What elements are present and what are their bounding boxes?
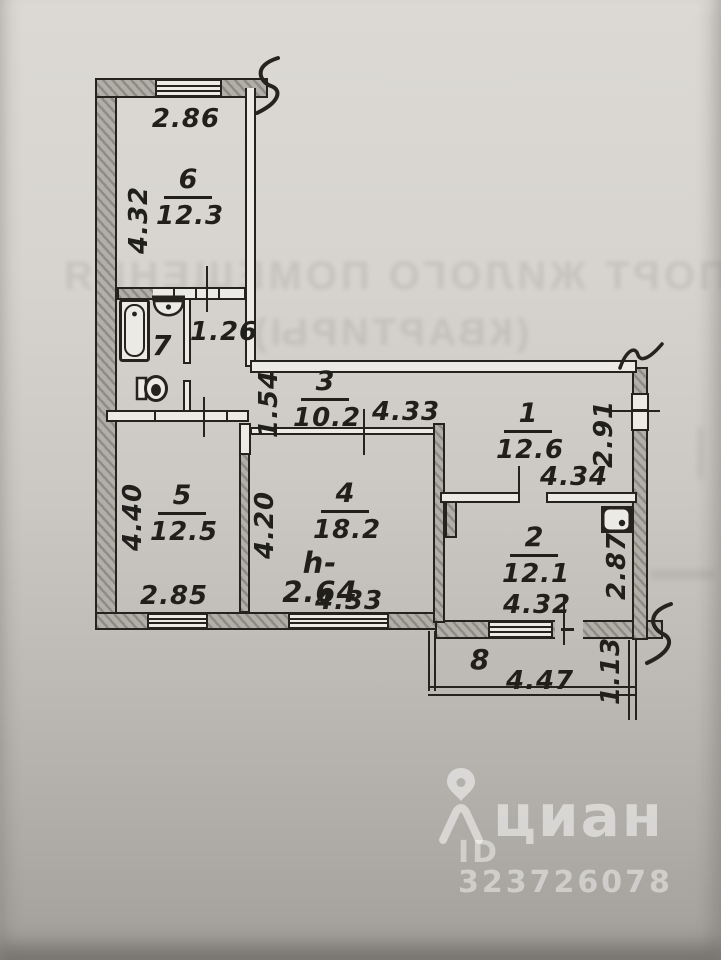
room-8-number: 8	[470, 646, 489, 674]
room-5-number: 5	[150, 482, 214, 509]
toilet-icon	[135, 373, 169, 403]
room-2-area: 12.1	[502, 561, 566, 587]
room-2-number: 2	[502, 524, 566, 551]
bathtub-icon	[119, 299, 150, 362]
room-6-number: 6	[156, 166, 220, 193]
dim-room4-width: 4.33	[315, 588, 379, 614]
dim-room6-height: 4.32	[124, 165, 154, 275]
fraction-bar	[158, 512, 206, 515]
room-4-number: 4	[313, 480, 377, 507]
dim-room3-height: 1.54	[254, 374, 284, 434]
fraction-bar	[504, 430, 552, 433]
wall-break-icon	[620, 344, 662, 368]
fraction-bar	[301, 398, 349, 401]
fraction-bar	[510, 554, 558, 557]
cian-brand-text: циан	[493, 790, 664, 842]
room-7-number: 7	[152, 332, 171, 360]
room-3-label: 3 10.2	[293, 368, 357, 431]
wall-break-icon	[257, 58, 278, 113]
fraction-bar	[321, 510, 369, 513]
dim-room2-height: 2.87	[602, 537, 632, 595]
dim-room4-height: 4.20	[250, 494, 280, 556]
room-5-area: 12.5	[150, 519, 214, 545]
floor-plan-scan: ПАСПОРТ ЖИЛОГО ПОМЕЩЕНИЯ (КВАРТИРЫ)	[0, 0, 721, 960]
dim-room1-height: 2.91	[589, 404, 619, 464]
dim-room1-width: 4.34	[540, 464, 604, 490]
room-5-label: 5 12.5	[150, 482, 214, 545]
cian-pin-icon	[437, 766, 485, 842]
dim-room8-width: 4.47	[506, 668, 570, 694]
room-1-label: 1 12.6	[496, 400, 560, 463]
wall-break-icon	[647, 604, 671, 663]
kitchen-sink-icon	[601, 506, 633, 533]
room-6-label: 6 12.3	[156, 166, 220, 229]
room-3-area: 10.2	[293, 405, 357, 431]
dim-room3-width: 4.33	[372, 399, 436, 425]
dim-hall-width: 1.26	[190, 319, 246, 345]
room-3-number: 3	[293, 368, 357, 395]
dim-room5-height: 4.40	[118, 486, 148, 548]
cian-watermark: циан	[437, 766, 664, 842]
room-2-label: 2 12.1	[502, 524, 566, 587]
fraction-bar	[164, 196, 212, 199]
room-1-number: 1	[496, 400, 560, 427]
room-4-label: 4 18.2	[313, 480, 377, 543]
room-4-area: 18.2	[313, 517, 377, 543]
listing-id: ID 323726078	[458, 838, 721, 898]
dim-room2-width: 4.32	[503, 592, 567, 618]
dim-room8-height: 1.13	[596, 642, 626, 700]
dim-room5-width: 2.85	[140, 583, 204, 609]
room-1-area: 12.6	[496, 437, 560, 463]
dim-room6-width: 2.86	[146, 106, 226, 132]
sink-icon	[150, 295, 187, 322]
room-6-area: 12.3	[156, 203, 220, 229]
